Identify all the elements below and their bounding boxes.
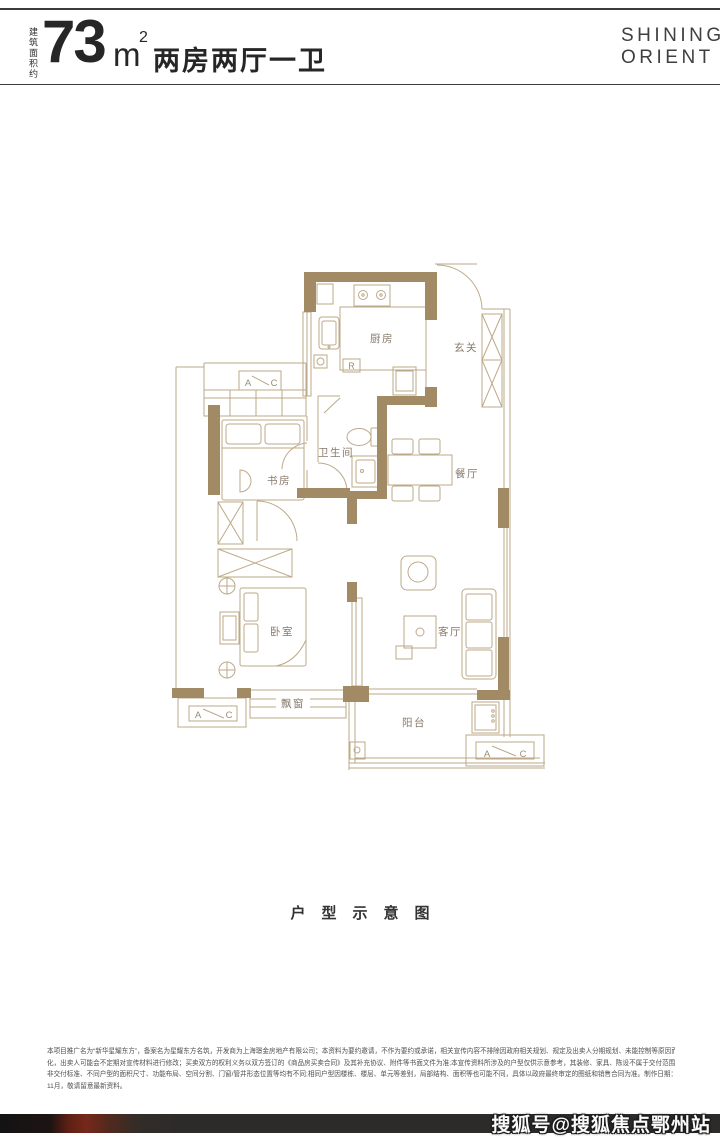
plan-caption: 户型示意图 bbox=[0, 902, 720, 923]
room-label-study: 书房 bbox=[267, 474, 291, 487]
room-label-foyer: 玄关 bbox=[454, 341, 478, 354]
brand-line2: ORIENT bbox=[621, 47, 720, 69]
room-label-balcony: 阳台 bbox=[402, 716, 426, 729]
brand-logo: SHINING ORIENT bbox=[621, 25, 720, 69]
room-label-bay-window: 飘窗 bbox=[281, 697, 305, 710]
poster-page: 建筑面积约 73 m 2 两房两厅一卫 SHINING ORIENT bbox=[0, 0, 720, 1139]
disclaimer-line-2: 化，出卖人可能会不定期对宣传材料进行修改；买卖双方的权利义务以双方签订的《商品房… bbox=[47, 1058, 675, 1070]
room-label-bedroom: 卧室 bbox=[270, 625, 294, 638]
top-rule bbox=[0, 8, 720, 10]
layout-title: 两房两厅一卫 bbox=[153, 39, 327, 78]
ac-right-c: C bbox=[520, 749, 527, 760]
room-label-living: 客厅 bbox=[438, 625, 462, 638]
area-unit: m bbox=[113, 36, 141, 74]
ac-left-a: A bbox=[195, 710, 202, 721]
ac-left-c: C bbox=[226, 710, 233, 721]
area-value: 73 bbox=[42, 13, 105, 71]
header-divider-rule bbox=[0, 84, 720, 85]
area-note: 建筑面积约 bbox=[27, 27, 40, 80]
area-superscript: 2 bbox=[139, 29, 148, 47]
floorplan-svg: 厨房 玄关 卫生间 餐厅 书房 卧室 客厅 飘窗 阳台 R A C A C A … bbox=[165, 245, 555, 780]
room-label-kitchen: 厨房 bbox=[370, 332, 394, 345]
ac-top-c: C bbox=[271, 378, 278, 389]
watermark-text: 搜狐号@搜狐焦点鄂州站 bbox=[491, 1110, 711, 1137]
disclaimer-line-3: 非交付标准、不同户型的面积尺寸、功能布局、空间分割、门窗/管井形态位置等均有不同… bbox=[47, 1069, 675, 1081]
ac-top-a: A bbox=[245, 378, 252, 389]
room-label-dining: 餐厅 bbox=[455, 467, 479, 480]
disclaimer-text: 本项目推广名为“新华星耀东方”，备案名为星耀东方名筑，开发商为上海璟金房地产有限… bbox=[47, 1046, 675, 1092]
disclaimer-line-4: 11月，敬请留意最新资料。 bbox=[47, 1081, 675, 1093]
ac-right-a: A bbox=[484, 749, 491, 760]
fridge-marker: R bbox=[348, 361, 355, 371]
disclaimer-line-1: 本项目推广名为“新华星耀东方”，备案名为星耀东方名筑，开发商为上海璟金房地产有限… bbox=[47, 1046, 675, 1058]
room-label-bathroom: 卫生间 bbox=[318, 446, 354, 459]
brand-line1: SHINING bbox=[621, 25, 720, 47]
